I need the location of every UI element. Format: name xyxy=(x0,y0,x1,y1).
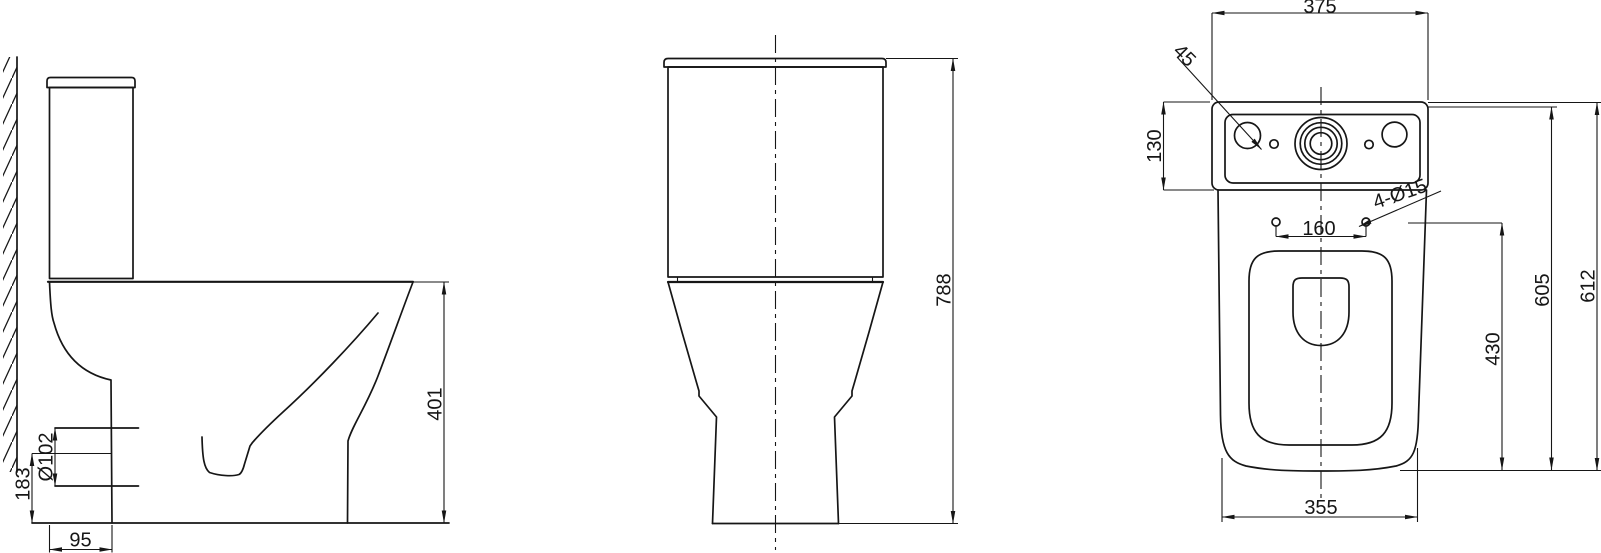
leader-line-flush-hole xyxy=(1177,57,1262,150)
dim-flush-hole: 45 xyxy=(1169,40,1200,71)
flush-hole-right xyxy=(1382,122,1407,147)
front-view: 788 xyxy=(664,35,958,550)
toilet-dimension-drawing: Ø102 183 95 401 788 xyxy=(0,0,1601,553)
dim-fixing-holes: 4-Ø15 xyxy=(1370,175,1430,214)
dim-wall-distance: 95 xyxy=(69,530,91,552)
wall-hatch xyxy=(3,57,17,472)
fixing-hole-left xyxy=(1272,218,1280,226)
dim-outlet-height: 183 xyxy=(13,467,35,500)
bowl-rear-profile xyxy=(348,282,414,523)
side-view: Ø102 183 95 401 xyxy=(3,57,449,553)
dim-hole-spacing: 160 xyxy=(1302,218,1335,240)
bowl-right-profile xyxy=(835,282,884,524)
dim-overall-depth: 612 xyxy=(1578,269,1600,302)
dim-tank-width: 375 xyxy=(1303,0,1336,18)
cistern-body-side xyxy=(50,88,134,279)
small-hole-right xyxy=(1365,140,1373,148)
dim-tank-depth: 130 xyxy=(1144,129,1166,162)
small-hole-left xyxy=(1270,140,1278,148)
dim-tank-front-depth: 605 xyxy=(1532,273,1554,306)
dim-bowl-width: 355 xyxy=(1304,497,1337,519)
dim-overall-height: 788 xyxy=(934,273,956,306)
cistern-lid-side xyxy=(47,78,135,88)
dim-outlet-diameter: Ø102 xyxy=(36,433,58,482)
bowl-left-profile xyxy=(668,282,717,524)
dim-rim-height: 401 xyxy=(425,387,447,420)
sump-outline xyxy=(202,437,253,476)
dim-hole-depth: 430 xyxy=(1483,332,1505,365)
technical-drawing-sheet: Ø102 183 95 401 788 xyxy=(0,0,1601,553)
top-view: 375 45 130 160 4-Ø15 430 605 612 355 xyxy=(1144,0,1601,522)
trapway-curve xyxy=(253,313,379,443)
